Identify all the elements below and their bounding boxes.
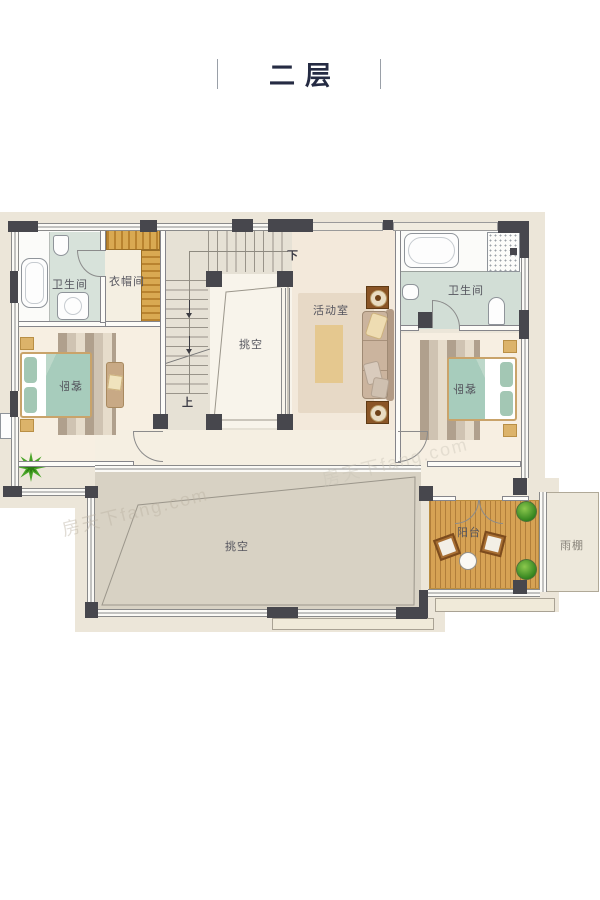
- stairwell-railing: [281, 288, 293, 416]
- plant-icon: [16, 452, 46, 482]
- stair-arrow-icon: [189, 300, 190, 313]
- stair-guide-line-h: [190, 251, 288, 252]
- bathtub-left-inner: [25, 262, 44, 304]
- wall: [100, 276, 106, 323]
- lamp-center: [375, 295, 381, 301]
- pillow: [24, 357, 37, 383]
- stair-arrow-icon: [189, 336, 190, 349]
- potted-plant-icon: [516, 501, 537, 522]
- wall: [100, 230, 106, 251]
- wall-column: [277, 414, 293, 430]
- wall-column: [513, 478, 527, 495]
- wall: [140, 220, 157, 232]
- wall-column: [419, 486, 433, 501]
- door-leaf: [133, 431, 163, 432]
- window: [98, 609, 267, 617]
- wall: [160, 230, 166, 415]
- rug-activity-center: [315, 325, 343, 383]
- wall: [3, 486, 22, 497]
- stair-flight-left: [166, 272, 208, 394]
- room-label-bath-right: 卫生间: [448, 282, 484, 298]
- room-label-void-stairwell: 挑空: [239, 336, 263, 352]
- wall: [10, 271, 18, 303]
- potted-plant-icon: [516, 559, 537, 580]
- stair-guide-line-v: [189, 251, 190, 394]
- window: [521, 258, 529, 310]
- wall: [105, 321, 166, 327]
- sofa-seam: [363, 340, 387, 341]
- door-leaf: [398, 431, 428, 432]
- toilet-left: [53, 235, 69, 256]
- wall: [383, 220, 393, 230]
- room-label-balcony: 阳台: [457, 524, 481, 540]
- wall-column: [206, 271, 222, 287]
- wall: [519, 310, 529, 339]
- wall: [520, 230, 529, 258]
- room-label-bedroom-left: 客卧: [58, 378, 82, 394]
- bathtub-right-inner: [408, 237, 455, 264]
- wall-column: [85, 602, 98, 618]
- nightstand-right-bottom: [503, 424, 517, 437]
- room-label-bedroom-right: 客卧: [452, 381, 476, 397]
- side-table-bottom: [366, 401, 389, 424]
- wall: [400, 325, 419, 331]
- wall: [395, 230, 401, 463]
- sink-left: [64, 297, 82, 315]
- window: [298, 609, 396, 617]
- floorplan-page: 二层: [0, 0, 600, 900]
- sofa-pillow: [370, 377, 389, 399]
- shower-head: [510, 248, 517, 255]
- bench-cushion: [107, 374, 123, 391]
- wall-column: [513, 580, 527, 594]
- stair-arrowhead-icon: [186, 349, 192, 354]
- wall-column: [85, 486, 98, 498]
- stairs-up-label: 上: [182, 394, 194, 410]
- wardrobe-top: [106, 230, 160, 250]
- room-label-canopy: 雨棚: [560, 537, 584, 553]
- wall: [502, 496, 529, 501]
- wall: [267, 607, 298, 618]
- pillow: [24, 387, 37, 413]
- stairwell-void-outline: [214, 286, 288, 420]
- room-label-void-large: 挑空: [225, 538, 249, 554]
- window: [157, 223, 232, 231]
- stairs-down-label: 下: [287, 247, 299, 263]
- wall: [429, 496, 456, 501]
- window: [539, 492, 547, 592]
- wall: [18, 321, 106, 327]
- wall: [8, 221, 38, 232]
- wall: [10, 391, 18, 417]
- balcony-table: [459, 552, 477, 570]
- door-leaf: [432, 300, 433, 328]
- void-outline-layer: [0, 0, 600, 900]
- window: [11, 303, 19, 391]
- chair-cushion: [485, 536, 502, 553]
- pillow: [500, 362, 513, 387]
- wall: [268, 219, 313, 232]
- wall: [419, 590, 428, 618]
- wall-column: [153, 414, 168, 429]
- window: [11, 417, 19, 486]
- wall-column: [206, 414, 222, 430]
- room-label-bath-left: 卫生间: [52, 276, 88, 292]
- side-table-top: [366, 286, 389, 309]
- lamp-center: [375, 410, 381, 416]
- wall: [311, 222, 383, 231]
- nightstand-right-top: [503, 340, 517, 353]
- wall: [459, 325, 521, 331]
- pillow: [500, 391, 513, 416]
- toilet-right: [488, 297, 505, 325]
- window: [22, 488, 86, 496]
- wall: [418, 312, 433, 328]
- wall-column: [277, 271, 293, 287]
- door-leaf: [77, 250, 100, 251]
- stair-arrowhead-icon: [186, 313, 192, 318]
- room-label-activity: 活动室: [313, 302, 349, 318]
- window: [253, 223, 268, 231]
- room-label-cloakroom: 衣帽间: [109, 273, 145, 289]
- bath-left-divider: [49, 232, 50, 322]
- window: [11, 232, 19, 271]
- wall: [232, 219, 253, 232]
- window: [521, 339, 529, 478]
- sink-right: [402, 284, 419, 300]
- nightstand-left-bottom: [20, 419, 34, 432]
- wall: [393, 222, 498, 231]
- nightstand-left-top: [20, 337, 34, 350]
- window: [38, 223, 140, 231]
- chair-cushion: [438, 538, 456, 556]
